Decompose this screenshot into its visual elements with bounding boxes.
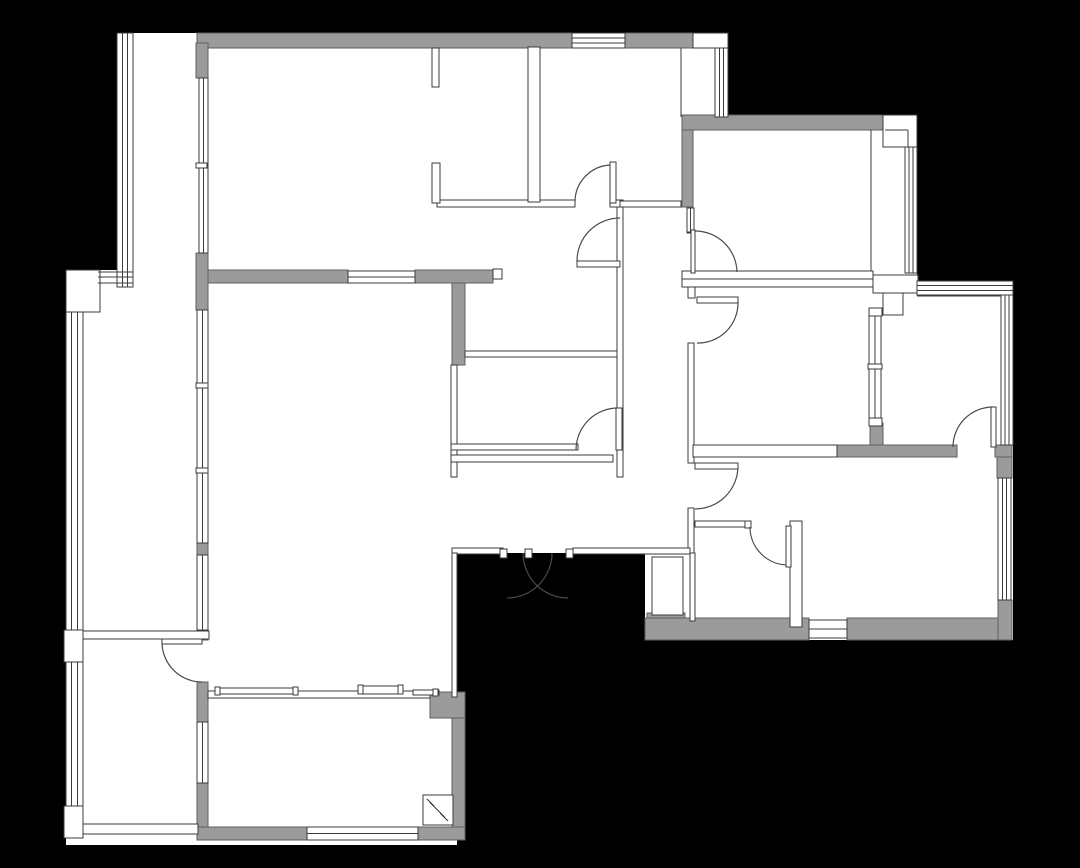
interior-wall [690,553,695,621]
junction-box [652,557,683,615]
interior-wall [790,521,802,627]
wall-segment [418,827,465,840]
window [1001,295,1013,445]
window-sill [358,686,403,694]
door-small-bath-leaf [786,526,791,567]
interior-wall [688,508,694,553]
floor-area [682,115,917,283]
interior-wall [873,275,918,293]
wall-segment [197,682,208,722]
interior-wall [451,455,613,462]
interior-wall [451,444,578,450]
floor-area [430,200,695,553]
window [905,147,917,273]
window [572,33,625,48]
door-se-room-leaf [695,463,738,469]
wall-tick [215,687,220,695]
window [117,33,133,287]
junction-box [64,806,83,838]
wall-segment [452,283,465,365]
interior-wall [437,200,575,207]
door-east-study-leaf [991,407,996,447]
window [66,662,83,806]
junction-box [66,270,100,312]
wall-segment [682,115,883,130]
floor-area [682,281,1013,463]
interior-wall [620,201,681,207]
window [917,281,1013,295]
wall-segment [645,618,809,640]
floor-area [645,445,1013,640]
window [66,312,83,630]
junction-box [869,308,882,316]
wall-tick [196,383,208,388]
interior-wall [83,631,209,639]
wall-segment [196,43,208,78]
door-kitchen-leaf [616,408,622,450]
interior-wall [432,48,439,87]
junction-box [64,630,83,662]
wall-segment [197,543,208,555]
wall-segment [837,445,957,457]
interior-wall [432,163,440,203]
interior-wall [573,548,690,554]
junction-box [500,549,507,558]
wall-tick [196,163,207,168]
window [998,478,1011,600]
floor-area [66,270,457,845]
wall-tick [358,685,363,694]
junction-box [693,33,728,48]
junction-box [525,549,532,558]
wall-segment [682,130,693,207]
wall-segment [196,253,208,310]
wall-segment [208,270,348,283]
window [715,48,728,117]
door-ne-bedroom-leaf [691,230,695,273]
interior-wall [452,548,503,554]
interior-wall [528,47,540,202]
interior-wall [695,521,747,527]
interior-wall [465,351,620,357]
junction-box [883,115,917,147]
wall-tick [398,685,403,694]
junction-box [745,521,751,528]
door-balcony-divider-leaf [162,639,202,644]
interior-wall [83,824,198,834]
wall-segment [998,600,1012,640]
interior-wall [452,553,457,697]
wall-segment [625,33,693,48]
wall-segment [197,33,572,48]
floor-plan-svg [0,0,1080,868]
door-mid-right-room-leaf [697,297,738,303]
junction-box [566,549,573,558]
door-north-corridor-leaf [577,261,620,267]
wall-segment [197,827,307,840]
wall-segment [847,618,1012,640]
wall-tick [868,364,882,369]
wall-tick [293,687,298,695]
floor-plan [0,0,1080,868]
window-sill [215,688,298,694]
wall-tick [196,468,208,473]
wall-segment [995,445,1012,457]
junction-box [869,418,882,426]
wall-tick [433,689,438,696]
wall-segment [415,270,493,283]
junction-box [493,269,502,279]
door-top-middle-room-leaf [610,162,616,203]
interior-wall [883,293,903,315]
wall-segment [997,457,1012,478]
interior-wall [693,445,837,457]
